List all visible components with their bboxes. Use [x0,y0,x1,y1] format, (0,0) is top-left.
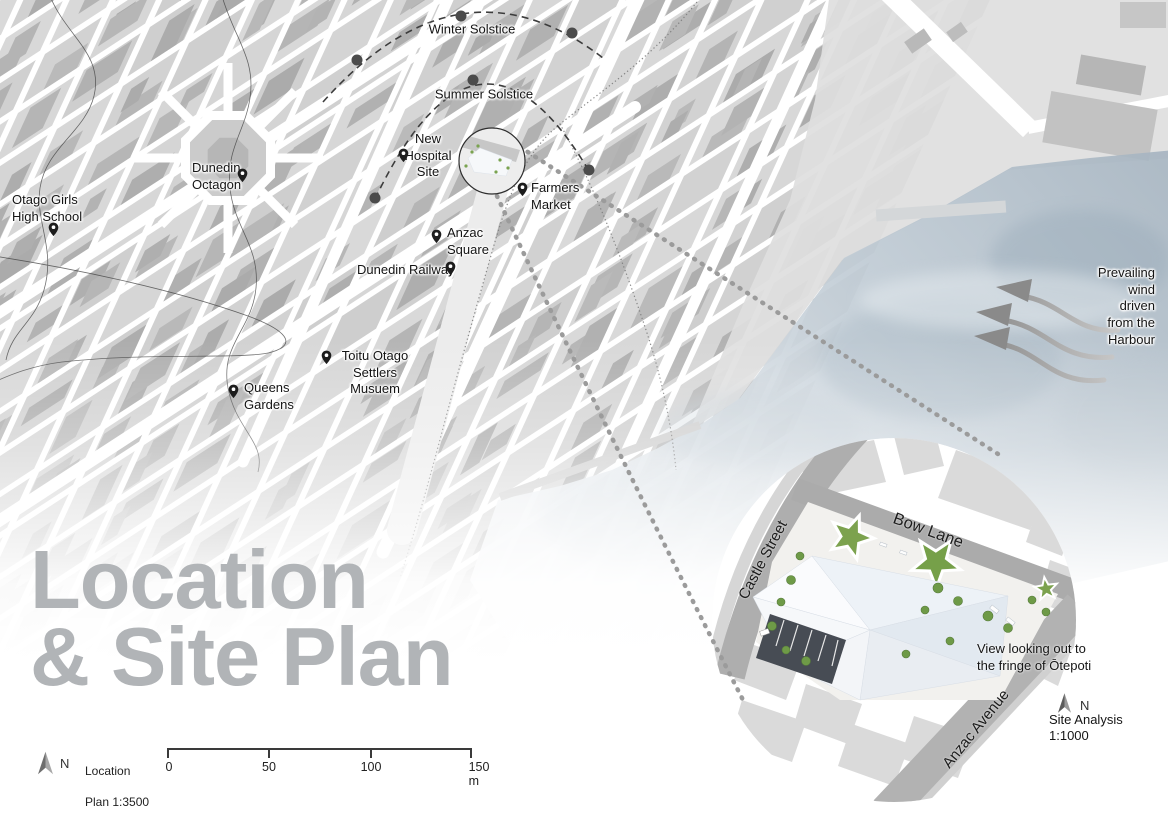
scale-bar-value: 100 [361,760,382,774]
map-pin-icon [321,350,332,365]
label-queens-gardens: Queens Gardens [244,380,294,413]
north-arrow-icon [1058,693,1071,713]
label-anzac-square: Anzac Square [447,225,489,258]
label-toitu-museum: Toitu Otago Settlers Musuem [332,348,418,398]
legend-plan: Location Plan 1:3500 [85,748,149,826]
map-pin-icon [48,222,59,237]
scale-bar-tick [470,748,472,758]
map-pin-icon [398,148,409,163]
label-site-analysis-scale: 1:1000 [1049,728,1089,745]
label-winter-solstice: Winter Solstice [429,22,516,39]
title-line-2: & Site Plan [30,618,453,695]
site-highlight-circle [459,128,525,194]
scale-bar: 0 50 100 150 m [167,748,472,778]
map-pin-icon [237,168,248,183]
map-pin-icon [517,182,528,197]
map-pin-icon [445,261,456,276]
label-wind-note: Prevailing wind driven from the Harbour [1098,265,1155,348]
label-site-analysis: Site Analysis [1049,712,1123,729]
map-pin-icon [431,229,442,244]
scale-bar-tick [370,748,372,758]
location-site-plan-poster: Winter Solstice Summer Solstice New Hosp… [0,0,1168,826]
label-view-note: View looking out to the fringe of Ōtepot… [977,641,1091,675]
label-new-hospital-site: New Hospital Site [405,131,452,181]
map-pin-icon [228,384,239,399]
label-dunedin-octagon: Dunedin Octagon [192,160,241,193]
north-arrow-icon [38,751,53,775]
label-dunedin-railway: Dunedin Railway [357,262,455,279]
north-label: N [60,756,69,771]
page-title: Location & Site Plan [30,541,453,695]
legend-plan-name: Location [85,764,149,780]
scale-bar-line [167,748,472,750]
label-otago-girls: Otago Girls High School [12,192,82,225]
scale-bar-value: 0 [166,760,173,774]
north-label: N [1080,698,1089,713]
scale-bar-tick [268,748,270,758]
scale-bar-tick [167,748,169,758]
legend-plan-scale: Plan 1:3500 [85,795,149,811]
label-summer-solstice: Summer Solstice [435,87,533,104]
scale-bar-value: 150 m [469,760,490,788]
dunedin-octagon-shape [133,63,323,253]
title-line-1: Location [30,541,453,618]
label-farmers-market: Farmers Market [531,180,579,213]
scale-bar-value: 50 [262,760,276,774]
